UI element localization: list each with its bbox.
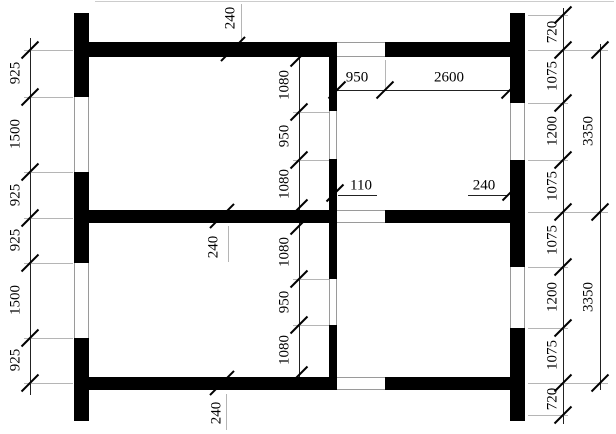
dimension-label: 1080	[278, 169, 293, 199]
extension-line	[24, 263, 73, 264]
right-wall-window-upper	[511, 103, 524, 160]
wall-middle-segment-left	[74, 210, 337, 223]
wall-partition-segment-top	[329, 42, 337, 111]
dimension-label: 1075	[546, 61, 561, 91]
dimension-label: 1500	[9, 285, 24, 315]
leader-underline	[468, 195, 508, 196]
wall-bottom-segment-left	[74, 377, 337, 390]
dimension-label: 1080	[278, 237, 293, 267]
dimension-label: 1500	[9, 119, 24, 149]
extension-line	[24, 50, 73, 51]
middle-wall-door-opening	[337, 211, 385, 222]
dimension-label: 1200	[546, 116, 561, 146]
dimension-label: 950	[346, 71, 369, 86]
dimension-label: 925	[9, 229, 24, 252]
dimension-line	[299, 223, 300, 377]
dimension-label: 3350	[582, 116, 597, 146]
dimension-label: 720	[546, 21, 561, 44]
left-wall-window-upper	[75, 97, 88, 172]
dimension-label: 1080	[278, 335, 293, 365]
extension-line	[24, 383, 73, 384]
dimension-label: 925	[9, 349, 24, 372]
wall-left-segment-bottom	[74, 338, 89, 421]
extension-line	[24, 172, 73, 173]
leader-line	[226, 394, 227, 430]
extension-line	[24, 97, 73, 98]
extension-line	[385, 60, 386, 89]
dimension-label: 240	[473, 179, 496, 194]
dimension-line	[299, 57, 300, 210]
dimension-label: 2600	[434, 71, 464, 86]
wall-top-segment-right	[385, 42, 525, 57]
dimension-label: 720	[546, 388, 561, 411]
dimension-label: 110	[350, 179, 372, 194]
dimension-line	[337, 90, 510, 91]
dimension-label: 950	[278, 125, 293, 148]
wall-left-segment-mid	[74, 172, 89, 263]
dimension-label: 240	[210, 402, 225, 425]
dimension-label: 240	[207, 236, 222, 259]
dimension-label: 1075	[546, 171, 561, 201]
wall-top-segment-left	[74, 42, 337, 57]
wall-right-segment-top	[510, 13, 525, 103]
wall-bottom-segment-right	[385, 377, 525, 390]
dimension-label: 240	[224, 7, 239, 30]
leader-line	[228, 226, 229, 262]
dimension-label: 950	[278, 291, 293, 314]
wall-right-segment-mid	[510, 160, 525, 267]
wall-right-segment-bottom	[510, 328, 525, 421]
sheet-edge-line	[95, 1, 614, 2]
dimension-label: 3350	[582, 282, 597, 312]
dimension-label: 1080	[278, 70, 293, 100]
extension-line	[24, 218, 73, 219]
partition-door-opening-upper	[330, 111, 336, 159]
wall-partition-segment-mid	[329, 159, 337, 279]
dimension-line	[563, 8, 564, 424]
wall-left-segment-top	[74, 13, 89, 97]
dimension-label: 1075	[546, 225, 561, 255]
leader-line	[241, 4, 242, 40]
dimension-label: 1200	[546, 282, 561, 312]
left-wall-window-lower	[75, 263, 88, 338]
leader-underline	[338, 195, 377, 196]
floor-plan-drawing: 925 1500 925 925 1500 925 1080 950 1080 …	[0, 0, 616, 434]
dimension-line	[600, 44, 601, 390]
extension-line	[24, 338, 73, 339]
top-wall-door-opening	[337, 43, 385, 56]
wall-partition-segment-bottom	[329, 325, 337, 390]
dimension-label: 1075	[546, 340, 561, 370]
right-wall-window-lower	[511, 267, 524, 328]
partition-door-opening-lower	[330, 279, 336, 325]
wall-middle-segment-right	[385, 210, 525, 223]
dimension-label: 925	[9, 62, 24, 85]
bottom-wall-door-opening	[337, 378, 385, 389]
dimension-label: 925	[9, 184, 24, 207]
